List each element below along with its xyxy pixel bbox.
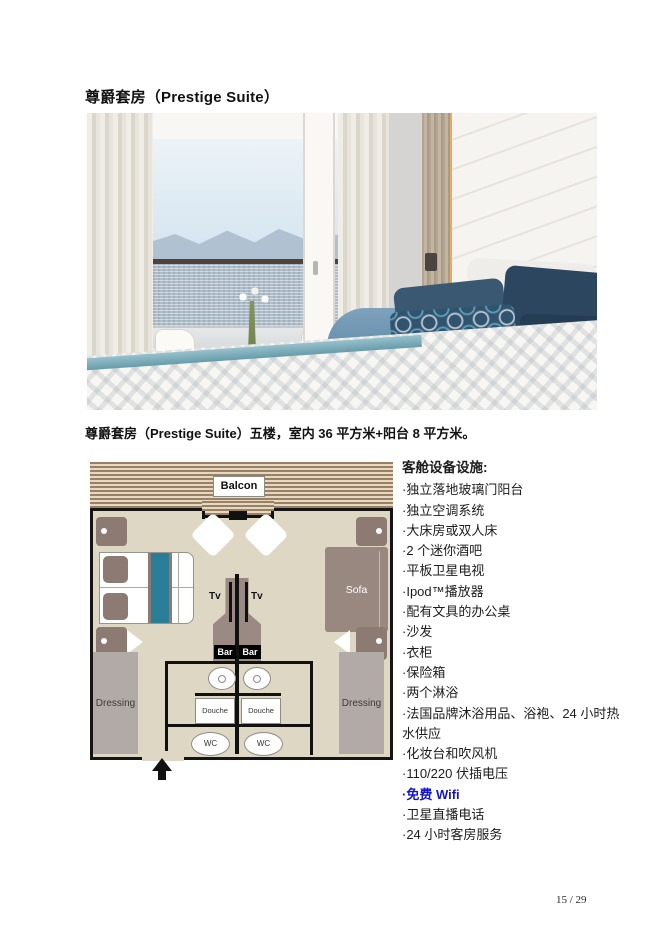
bed-runner [148,553,172,623]
bed-edge-line [178,553,179,623]
dressing-left: Dressing [93,652,138,754]
tv-screen-left [229,582,232,622]
amenity-item: ·化妆台和吹风机 [402,744,626,764]
balcony-label: Balcon [213,476,265,497]
bar-label-left: Bar [214,645,236,659]
amenity-item: ·两个淋浴 [402,683,626,703]
bed [99,552,194,624]
amenity-item: ·24 小时客房服务 [402,825,626,845]
amenity-item: ·独立落地玻璃门阳台 [402,480,626,500]
entrance-arrow-icon [158,771,166,780]
amenity-item: ·110/220 伏插电压 [402,764,626,784]
amenity-item: ·大床房或双人床 [402,521,626,541]
floorplan: Balcon Sofa Tv Tv Bar Bar [90,462,393,792]
lamp-light-left [127,630,143,654]
dressing-right: Dressing [339,652,384,754]
bathroom-wall [310,661,313,755]
balcony-door-tab [229,511,247,520]
amenities-list: 客舱设备设施: ·独立落地玻璃门阳台 ·独立空调系统 ·大床房或双人床 ·2 个… [402,458,626,846]
shower-right: Douche [241,698,281,724]
photo-wall-sconce [425,253,437,271]
amenity-item: ·沙发 [402,622,626,642]
photo-door-handle [313,261,318,275]
bed-divider [100,587,193,588]
bar-label-right: Bar [239,645,261,659]
shower-left: Douche [195,698,235,724]
bathroom-wall [195,693,281,696]
tv-screen-right [245,582,248,622]
bathroom-wall [165,661,313,664]
dressing-label: Dressing [342,698,381,709]
wc-right: WC [244,732,283,756]
amenity-item: ·配有文具的办公桌 [402,602,626,622]
tv-label-right: Tv [251,591,263,602]
amenity-item-free-wifi: ·免费 Wifi [402,785,626,805]
sink-right [243,667,271,690]
balcony-door-end [202,511,205,519]
amenity-item: ·2 个迷你酒吧 [402,541,626,561]
center-partition-wall [235,574,239,754]
amenity-item: ·独立空调系统 [402,501,626,521]
wc-left: WC [191,732,230,756]
amenity-item: ·卫星直播电话 [402,805,626,825]
bed-pillow [103,593,128,620]
bed-pillow [103,556,128,583]
photo-caption: 尊爵套房（Prestige Suite）五楼，室内 36 平方米+阳台 8 平方… [85,423,475,442]
amenity-item: ·平板卫星电视 [402,561,626,581]
entrance-arrow-icon [152,758,172,771]
page-title: 尊爵套房（Prestige Suite） [85,86,279,107]
amenities-header: 客舱设备设施: [402,458,626,478]
document-page: 尊爵套房（Prestige Suite） [0,0,668,945]
sofa: Sofa [325,547,388,632]
dressing-label: Dressing [96,698,135,709]
suite-photo [87,113,597,410]
photo-flower-blooms [235,285,271,311]
page-number: 15 / 29 [556,894,587,906]
nightstand-top-left [96,517,127,546]
nightstand-top-right [356,517,387,546]
bathroom-wall [165,661,168,755]
lamp-light-right [334,630,350,654]
bathroom-wall [165,724,313,727]
amenity-item: ·衣柜 [402,643,626,663]
amenity-item: ·Ipod™播放器 [402,582,626,602]
tv-label-left: Tv [209,591,221,602]
sofa-label: Sofa [346,584,368,596]
sink-left [208,667,236,690]
amenity-item: ·法国品牌沐浴用品、浴袍、24 小时热水供应 [402,704,626,745]
amenity-item: ·保险箱 [402,663,626,683]
